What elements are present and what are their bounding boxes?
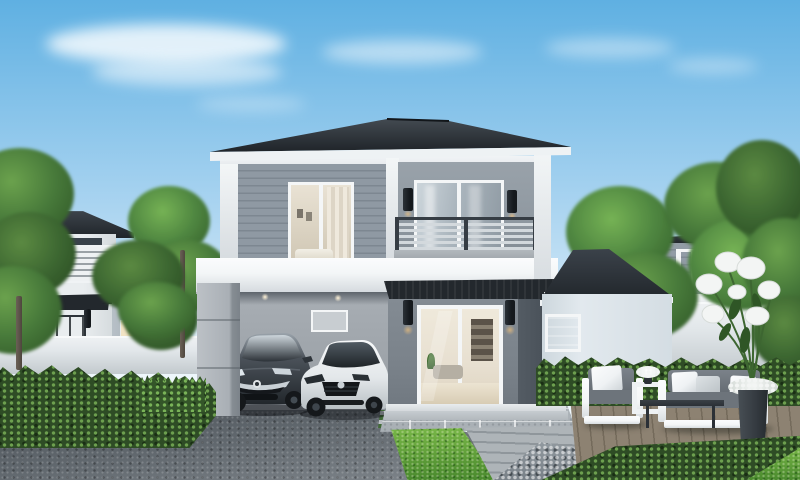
carport-window — [311, 310, 348, 332]
picture-frame — [306, 212, 312, 221]
sconce-glow — [401, 323, 415, 337]
armchair-seat — [586, 390, 638, 404]
cloud — [668, 58, 758, 74]
house-render-scene — [0, 0, 800, 480]
left-house-sconce — [84, 309, 91, 328]
picture-frame — [297, 209, 303, 218]
main-roof — [203, 110, 579, 164]
entrance-sconce — [403, 300, 413, 325]
cloud — [545, 38, 675, 58]
entrance-step-lower — [384, 411, 568, 420]
cloud — [322, 40, 482, 64]
white-car — [294, 332, 394, 422]
coffee-table-leg — [712, 406, 715, 428]
bedroom-window — [288, 182, 354, 270]
armchair-arm — [582, 378, 589, 418]
entrance-glass-door — [417, 305, 503, 408]
armchair-base — [584, 416, 640, 424]
pillar-seam — [197, 367, 240, 369]
interior-shelf — [471, 319, 493, 361]
upper-corner-trim — [220, 164, 238, 264]
entrance-sconce — [505, 300, 515, 325]
wing-window — [545, 314, 581, 352]
armchair-pillow — [591, 365, 623, 393]
carport-downlight — [260, 292, 270, 302]
tree-trunk — [16, 296, 22, 370]
carport-downlight — [333, 293, 343, 303]
railing-post — [464, 217, 468, 253]
railing-post — [395, 217, 399, 253]
sconce-glow — [503, 323, 517, 337]
cloud — [92, 58, 282, 86]
side-table-flowers — [636, 366, 660, 378]
entrance-awning — [384, 279, 554, 299]
lily-bouquet — [695, 248, 785, 388]
tree-canopy — [118, 282, 196, 338]
coffee-table-leg — [646, 406, 649, 428]
balcony-sconce — [403, 188, 413, 211]
balcony-sconce — [507, 190, 517, 213]
pillar-seam — [197, 319, 240, 321]
